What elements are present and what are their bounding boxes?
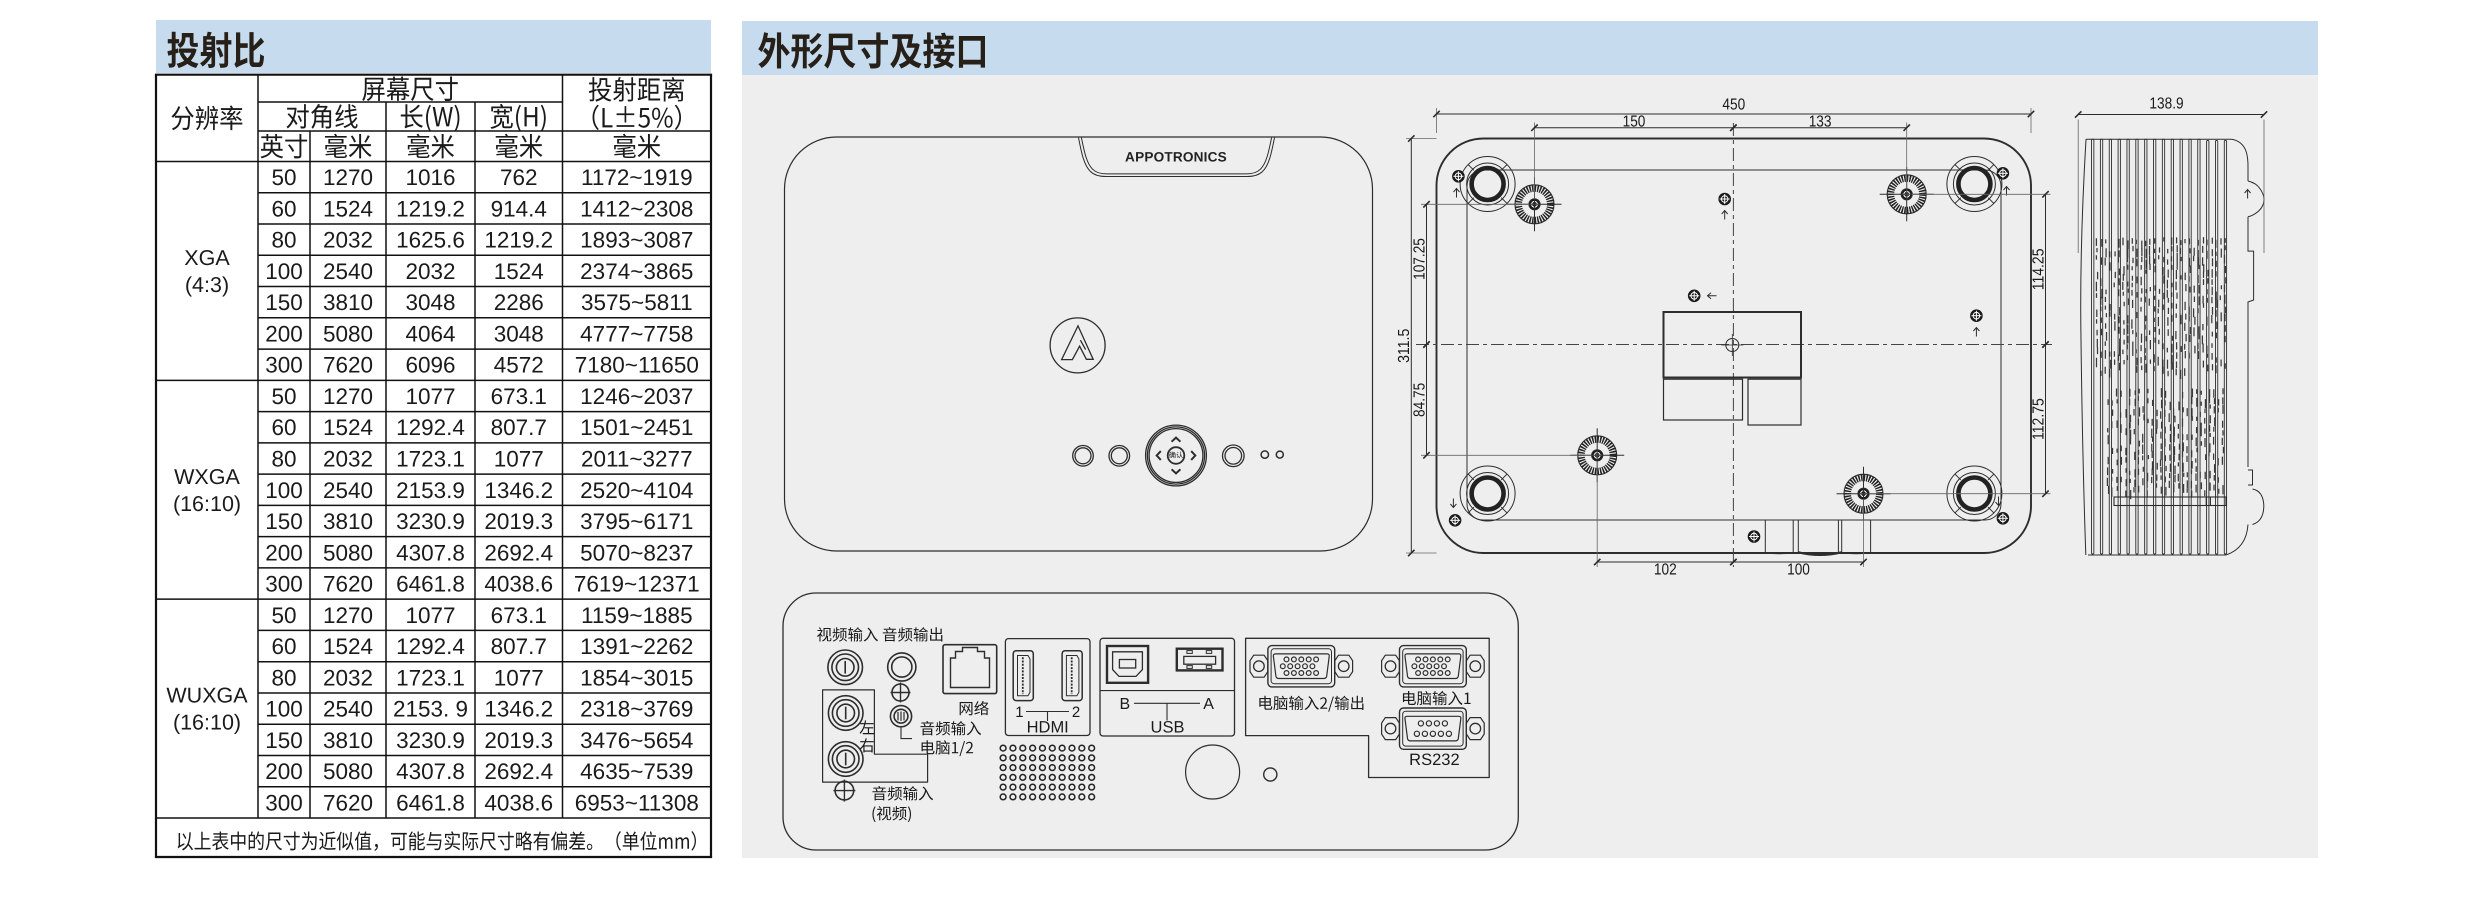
svg-text:RS232: RS232	[1409, 751, 1459, 769]
svg-text:3810: 3810	[323, 290, 373, 315]
svg-text:100: 100	[265, 259, 303, 284]
svg-text:1270: 1270	[323, 165, 373, 190]
svg-text:2153. 9: 2153. 9	[393, 697, 468, 722]
svg-text:7620: 7620	[323, 572, 373, 597]
svg-text:6953~11308: 6953~11308	[575, 790, 699, 815]
svg-text:100: 100	[1787, 562, 1810, 579]
svg-text:311.5: 311.5	[1396, 329, 1413, 363]
svg-text:1524: 1524	[323, 415, 373, 440]
svg-text:APPOTRONICS: APPOTRONICS	[1125, 150, 1227, 165]
svg-text:3810: 3810	[323, 728, 373, 753]
svg-text:1391~2262: 1391~2262	[580, 634, 693, 659]
svg-text:B: B	[1119, 696, 1130, 713]
svg-text:80: 80	[271, 447, 296, 472]
svg-text:2540: 2540	[323, 259, 373, 284]
svg-text:4635~7539: 4635~7539	[580, 759, 693, 784]
svg-text:6096: 6096	[405, 353, 455, 378]
svg-text:USB: USB	[1151, 719, 1185, 737]
svg-text:6461.8: 6461.8	[396, 572, 465, 597]
svg-text:50: 50	[271, 165, 296, 190]
svg-text:7620: 7620	[323, 353, 373, 378]
svg-text:3048: 3048	[494, 321, 544, 346]
svg-text:50: 50	[271, 384, 296, 409]
svg-text:1412~2308: 1412~2308	[580, 196, 693, 221]
svg-text:673.1: 673.1	[491, 384, 547, 409]
svg-text:4572: 4572	[494, 353, 544, 378]
svg-text:3575~5811: 3575~5811	[581, 290, 693, 315]
svg-text:300: 300	[265, 790, 303, 815]
svg-text:2032: 2032	[405, 259, 455, 284]
svg-text:80: 80	[271, 228, 296, 253]
svg-text:60: 60	[271, 415, 296, 440]
svg-text:2019.3: 2019.3	[484, 509, 553, 534]
svg-text:102: 102	[1654, 562, 1677, 579]
svg-text:84.75: 84.75	[1412, 383, 1429, 417]
svg-text:2374~3865: 2374~3865	[580, 259, 693, 284]
svg-text:1077: 1077	[494, 665, 544, 690]
svg-text:WUXGA: WUXGA	[166, 684, 248, 708]
svg-text:2032: 2032	[323, 665, 373, 690]
svg-text:1524: 1524	[494, 259, 544, 284]
svg-text:150: 150	[265, 290, 303, 315]
svg-text:1219.2: 1219.2	[396, 196, 465, 221]
svg-text:1625.6: 1625.6	[396, 228, 465, 253]
svg-text:2540: 2540	[323, 697, 373, 722]
svg-text:3476~5654: 3476~5654	[580, 728, 693, 753]
svg-text:807.7: 807.7	[491, 634, 547, 659]
svg-text:1246~2037: 1246~2037	[580, 384, 693, 409]
svg-text:50: 50	[271, 603, 296, 628]
svg-text:200: 200	[265, 540, 303, 565]
svg-text:1077: 1077	[405, 384, 455, 409]
svg-text:138.9: 138.9	[2149, 96, 2183, 113]
svg-text:(16:10): (16:10)	[173, 711, 241, 735]
svg-text:5080: 5080	[323, 321, 373, 346]
svg-text:114.25: 114.25	[2031, 248, 2048, 290]
svg-text:100: 100	[265, 697, 303, 722]
svg-text:807.7: 807.7	[491, 415, 547, 440]
svg-text:200: 200	[265, 759, 303, 784]
svg-text:2011~3277: 2011~3277	[581, 447, 693, 472]
svg-text:1077: 1077	[494, 447, 544, 472]
svg-text:2032: 2032	[323, 228, 373, 253]
svg-text:80: 80	[271, 665, 296, 690]
svg-text:2692.4: 2692.4	[484, 759, 553, 784]
svg-text:300: 300	[265, 572, 303, 597]
svg-text:1172~1919: 1172~1919	[581, 165, 693, 190]
svg-text:1723.1: 1723.1	[396, 665, 465, 690]
svg-text:133: 133	[1809, 113, 1832, 130]
svg-text:2032: 2032	[323, 447, 373, 472]
svg-text:2318~3769: 2318~3769	[580, 697, 693, 722]
svg-text:5080: 5080	[323, 540, 373, 565]
svg-text:(16:10): (16:10)	[173, 492, 241, 516]
svg-text:7619~12371: 7619~12371	[574, 572, 700, 597]
svg-text:1270: 1270	[323, 384, 373, 409]
svg-text:(4:3): (4:3)	[185, 273, 229, 297]
svg-text:4307.8: 4307.8	[396, 759, 465, 784]
svg-text:4307.8: 4307.8	[396, 540, 465, 565]
svg-text:4064: 4064	[405, 321, 455, 346]
svg-text:1893~3087: 1893~3087	[580, 228, 693, 253]
svg-text:150: 150	[265, 728, 303, 753]
svg-text:150: 150	[1623, 113, 1646, 130]
svg-text:6461.8: 6461.8	[396, 790, 465, 815]
svg-text:2692.4: 2692.4	[484, 540, 553, 565]
svg-text:60: 60	[271, 634, 296, 659]
svg-text:2520~4104: 2520~4104	[580, 478, 693, 503]
svg-text:1292.4: 1292.4	[396, 415, 465, 440]
svg-text:914.4: 914.4	[491, 196, 547, 221]
svg-text:4038.6: 4038.6	[484, 572, 553, 597]
svg-text:7620: 7620	[323, 790, 373, 815]
svg-text:3795~6171: 3795~6171	[580, 509, 693, 534]
svg-text:4777~7758: 4777~7758	[580, 321, 693, 346]
svg-text:762: 762	[500, 165, 538, 190]
svg-text:300: 300	[265, 353, 303, 378]
svg-text:A: A	[1203, 696, 1214, 713]
svg-text:2: 2	[1072, 704, 1080, 721]
svg-text:WXGA: WXGA	[174, 465, 240, 489]
svg-text:4038.6: 4038.6	[484, 790, 553, 815]
svg-text:107.25: 107.25	[1412, 238, 1429, 280]
svg-text:2153.9: 2153.9	[396, 478, 465, 503]
svg-text:1159~1885: 1159~1885	[581, 603, 693, 628]
svg-text:3810: 3810	[323, 509, 373, 534]
svg-text:1524: 1524	[323, 634, 373, 659]
svg-text:5080: 5080	[323, 759, 373, 784]
svg-text:673.1: 673.1	[491, 603, 547, 628]
svg-text:112.75: 112.75	[2031, 398, 2048, 440]
svg-text:HDMI: HDMI	[1027, 719, 1069, 737]
svg-text:1077: 1077	[405, 603, 455, 628]
svg-text:2540: 2540	[323, 478, 373, 503]
svg-text:1: 1	[1015, 704, 1023, 721]
svg-text:1346.2: 1346.2	[484, 697, 553, 722]
svg-text:100: 100	[265, 478, 303, 503]
svg-text:1723.1: 1723.1	[396, 447, 465, 472]
svg-text:1501~2451: 1501~2451	[580, 415, 693, 440]
svg-text:1219.2: 1219.2	[484, 228, 553, 253]
svg-text:1854~3015: 1854~3015	[580, 665, 693, 690]
svg-text:200: 200	[265, 321, 303, 346]
svg-text:1270: 1270	[323, 603, 373, 628]
svg-text:150: 150	[265, 509, 303, 534]
svg-text:3230.9: 3230.9	[396, 728, 465, 753]
svg-text:3230.9: 3230.9	[396, 509, 465, 534]
svg-text:60: 60	[271, 196, 296, 221]
svg-text:XGA: XGA	[184, 246, 230, 270]
svg-text:1524: 1524	[323, 196, 373, 221]
svg-text:1346.2: 1346.2	[484, 478, 553, 503]
svg-text:450: 450	[1722, 97, 1745, 114]
svg-text:3048: 3048	[405, 290, 455, 315]
svg-text:7180~11650: 7180~11650	[575, 353, 699, 378]
svg-text:2019.3: 2019.3	[484, 728, 553, 753]
svg-text:2286: 2286	[494, 290, 544, 315]
svg-text:1292.4: 1292.4	[396, 634, 465, 659]
svg-text:5070~8237: 5070~8237	[580, 540, 693, 565]
svg-text:1016: 1016	[405, 165, 455, 190]
